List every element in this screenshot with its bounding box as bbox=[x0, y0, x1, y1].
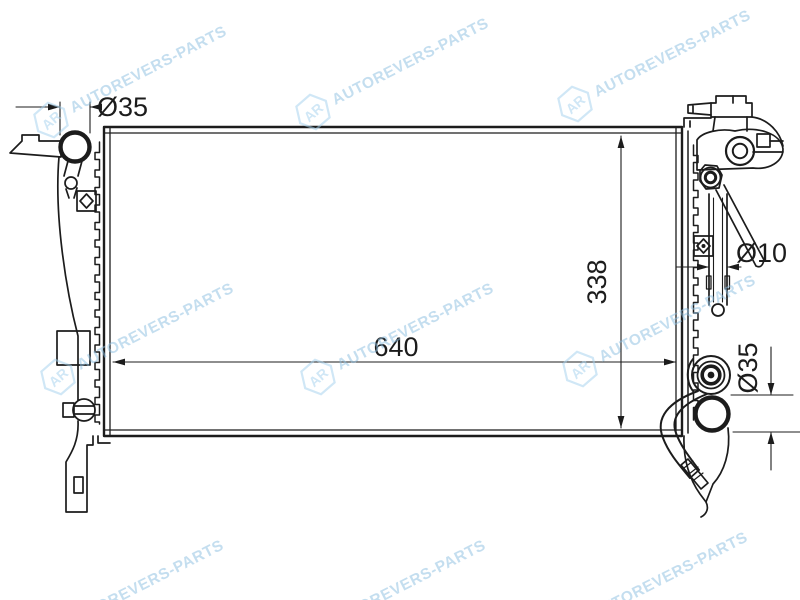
label-core-height: 338 bbox=[582, 259, 612, 304]
radiator-cap bbox=[711, 96, 752, 117]
upper-hose-boss bbox=[697, 129, 783, 170]
outlet-pipe-circle bbox=[696, 398, 729, 431]
label-inlet-diameter: Ø35 bbox=[97, 92, 148, 122]
inlet-pipe-circle bbox=[61, 133, 90, 162]
left-tank-serration bbox=[95, 142, 100, 424]
bracket-tab bbox=[57, 331, 90, 365]
drawing-canvas: Ø35 640 338 Ø10 Ø35 ARAUTOREVERS-PARTSAR… bbox=[0, 0, 800, 600]
lower-tank-edge-left bbox=[684, 436, 707, 517]
label-core-width: 640 bbox=[373, 332, 418, 362]
lower-tank-edge-right bbox=[706, 428, 729, 502]
radiator-technical-drawing: Ø35 640 338 Ø10 Ø35 bbox=[0, 0, 800, 600]
mount-bolt bbox=[63, 399, 95, 421]
tie-rod bbox=[709, 194, 727, 305]
overflow-tube bbox=[688, 103, 711, 115]
label-outlet-diameter: Ø35 bbox=[733, 342, 763, 393]
dim-inlet-diameter bbox=[16, 102, 102, 135]
label-pin-diameter: Ø10 bbox=[736, 238, 787, 268]
dim-core-height bbox=[618, 136, 625, 428]
bent-pipe-inner bbox=[674, 394, 707, 470]
